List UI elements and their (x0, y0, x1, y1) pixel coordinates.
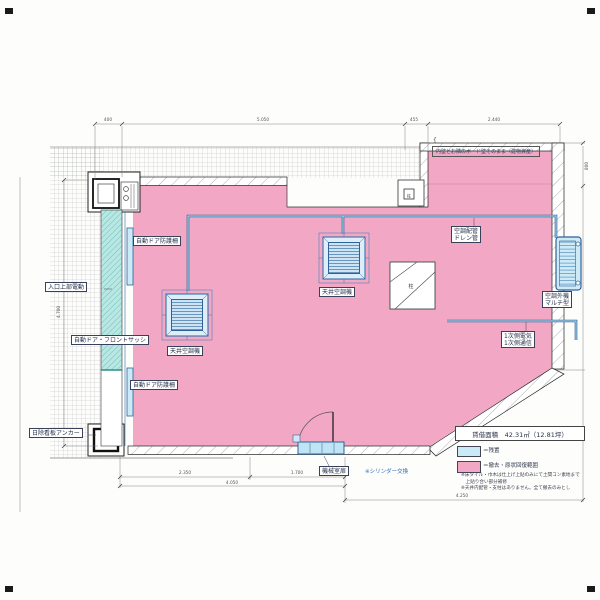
corner-mark (5, 586, 13, 592)
label-signboard-anchor: 日除看板アンカー (29, 428, 83, 438)
note-brace: { (433, 137, 437, 144)
legend-note-3: ※天井内配管・支柱はありません。全て撤去のみとし (461, 486, 570, 492)
label-ceiling-ac-left: 天井空調機 (167, 346, 203, 356)
door-guard-bottom (127, 368, 133, 416)
svg-text:800: 800 (584, 162, 590, 170)
legend-label-keep: ＝残置 (483, 446, 500, 454)
label-ceiling-ac-right: 天井空調機 (319, 287, 355, 297)
label-cylinder-note: ※シリンダー交換 (365, 467, 408, 475)
wall-column-box: 柱 (398, 180, 424, 206)
entrance-structure (88, 172, 140, 212)
label-auto-door-front-sash: 自動ドア・フロントサッシ (71, 335, 149, 345)
label-primary-telecom: 1次側通信 (504, 340, 532, 347)
label-ac-piping-line1: 空調配管 (454, 228, 478, 235)
label-outdoor-unit-line1: 空調外機 (545, 293, 569, 300)
column-glyph: 柱 (408, 283, 413, 290)
label-primary-electric: 1次側電気 (504, 333, 532, 340)
front-sash (101, 210, 125, 446)
label-primary-power: 1次側電気 1次側通信 (501, 331, 535, 348)
label-entrance-upper-motor: 入口上部電動 (45, 282, 87, 292)
center-column: 柱 (390, 262, 435, 309)
corner-mark (587, 8, 595, 14)
plan-drawing: 柱 柱 (0, 0, 600, 600)
corner-mark (587, 586, 595, 592)
svg-text:4.700: 4.700 (56, 306, 62, 319)
legend-label-restore: ＝撤去・原状回復範囲 (483, 461, 538, 469)
legend-area-total: 賃借面積 42.31㎡（12.81坪） (455, 426, 585, 441)
label-auto-door-guard-top: 自動ドア防護柵 (133, 236, 181, 246)
svg-text:2.440: 2.440 (488, 117, 501, 123)
label-ac-piping: 空調配管 ドレン管 (451, 226, 481, 243)
label-outdoor-unit: 空調外機 マルチ型 (542, 291, 572, 308)
legend-note-2: 上貼り合い部分補修 (461, 480, 507, 486)
ceiling-ac-unit (319, 233, 369, 283)
label-auto-door-guard-bottom: 自動ドア防護柵 (130, 380, 178, 390)
floor-plan-page: 柱 柱 (0, 0, 600, 600)
note-board-wall: 内壁とお隣のボード壁そのまま（建物資産） (432, 146, 540, 157)
legend-swatch-keep (457, 446, 481, 457)
legend-note-1: ※床タイル・巾木は仕上げ上貼のみにて土間コン素地まで (461, 473, 580, 479)
legend-swatch-restore (457, 461, 481, 473)
label-outdoor-unit-line2: マルチ型 (545, 300, 569, 307)
svg-text:455: 455 (410, 117, 418, 123)
svg-text:400: 400 (104, 117, 112, 123)
ceiling-ac-unit (162, 290, 212, 340)
svg-text:4.050: 4.050 (226, 480, 239, 486)
svg-text:1.700: 1.700 (291, 470, 304, 476)
outdoor-ac-unit (556, 237, 581, 290)
column-glyph: 柱 (407, 193, 411, 199)
label-machine-room-door: 機械室扉 (319, 466, 349, 476)
corner-mark (5, 8, 13, 14)
label-ac-piping-line2: ドレン管 (454, 235, 478, 242)
svg-text:4.250: 4.250 (456, 493, 469, 499)
svg-text:2.350: 2.350 (179, 470, 192, 476)
svg-text:5.050: 5.050 (257, 117, 270, 123)
